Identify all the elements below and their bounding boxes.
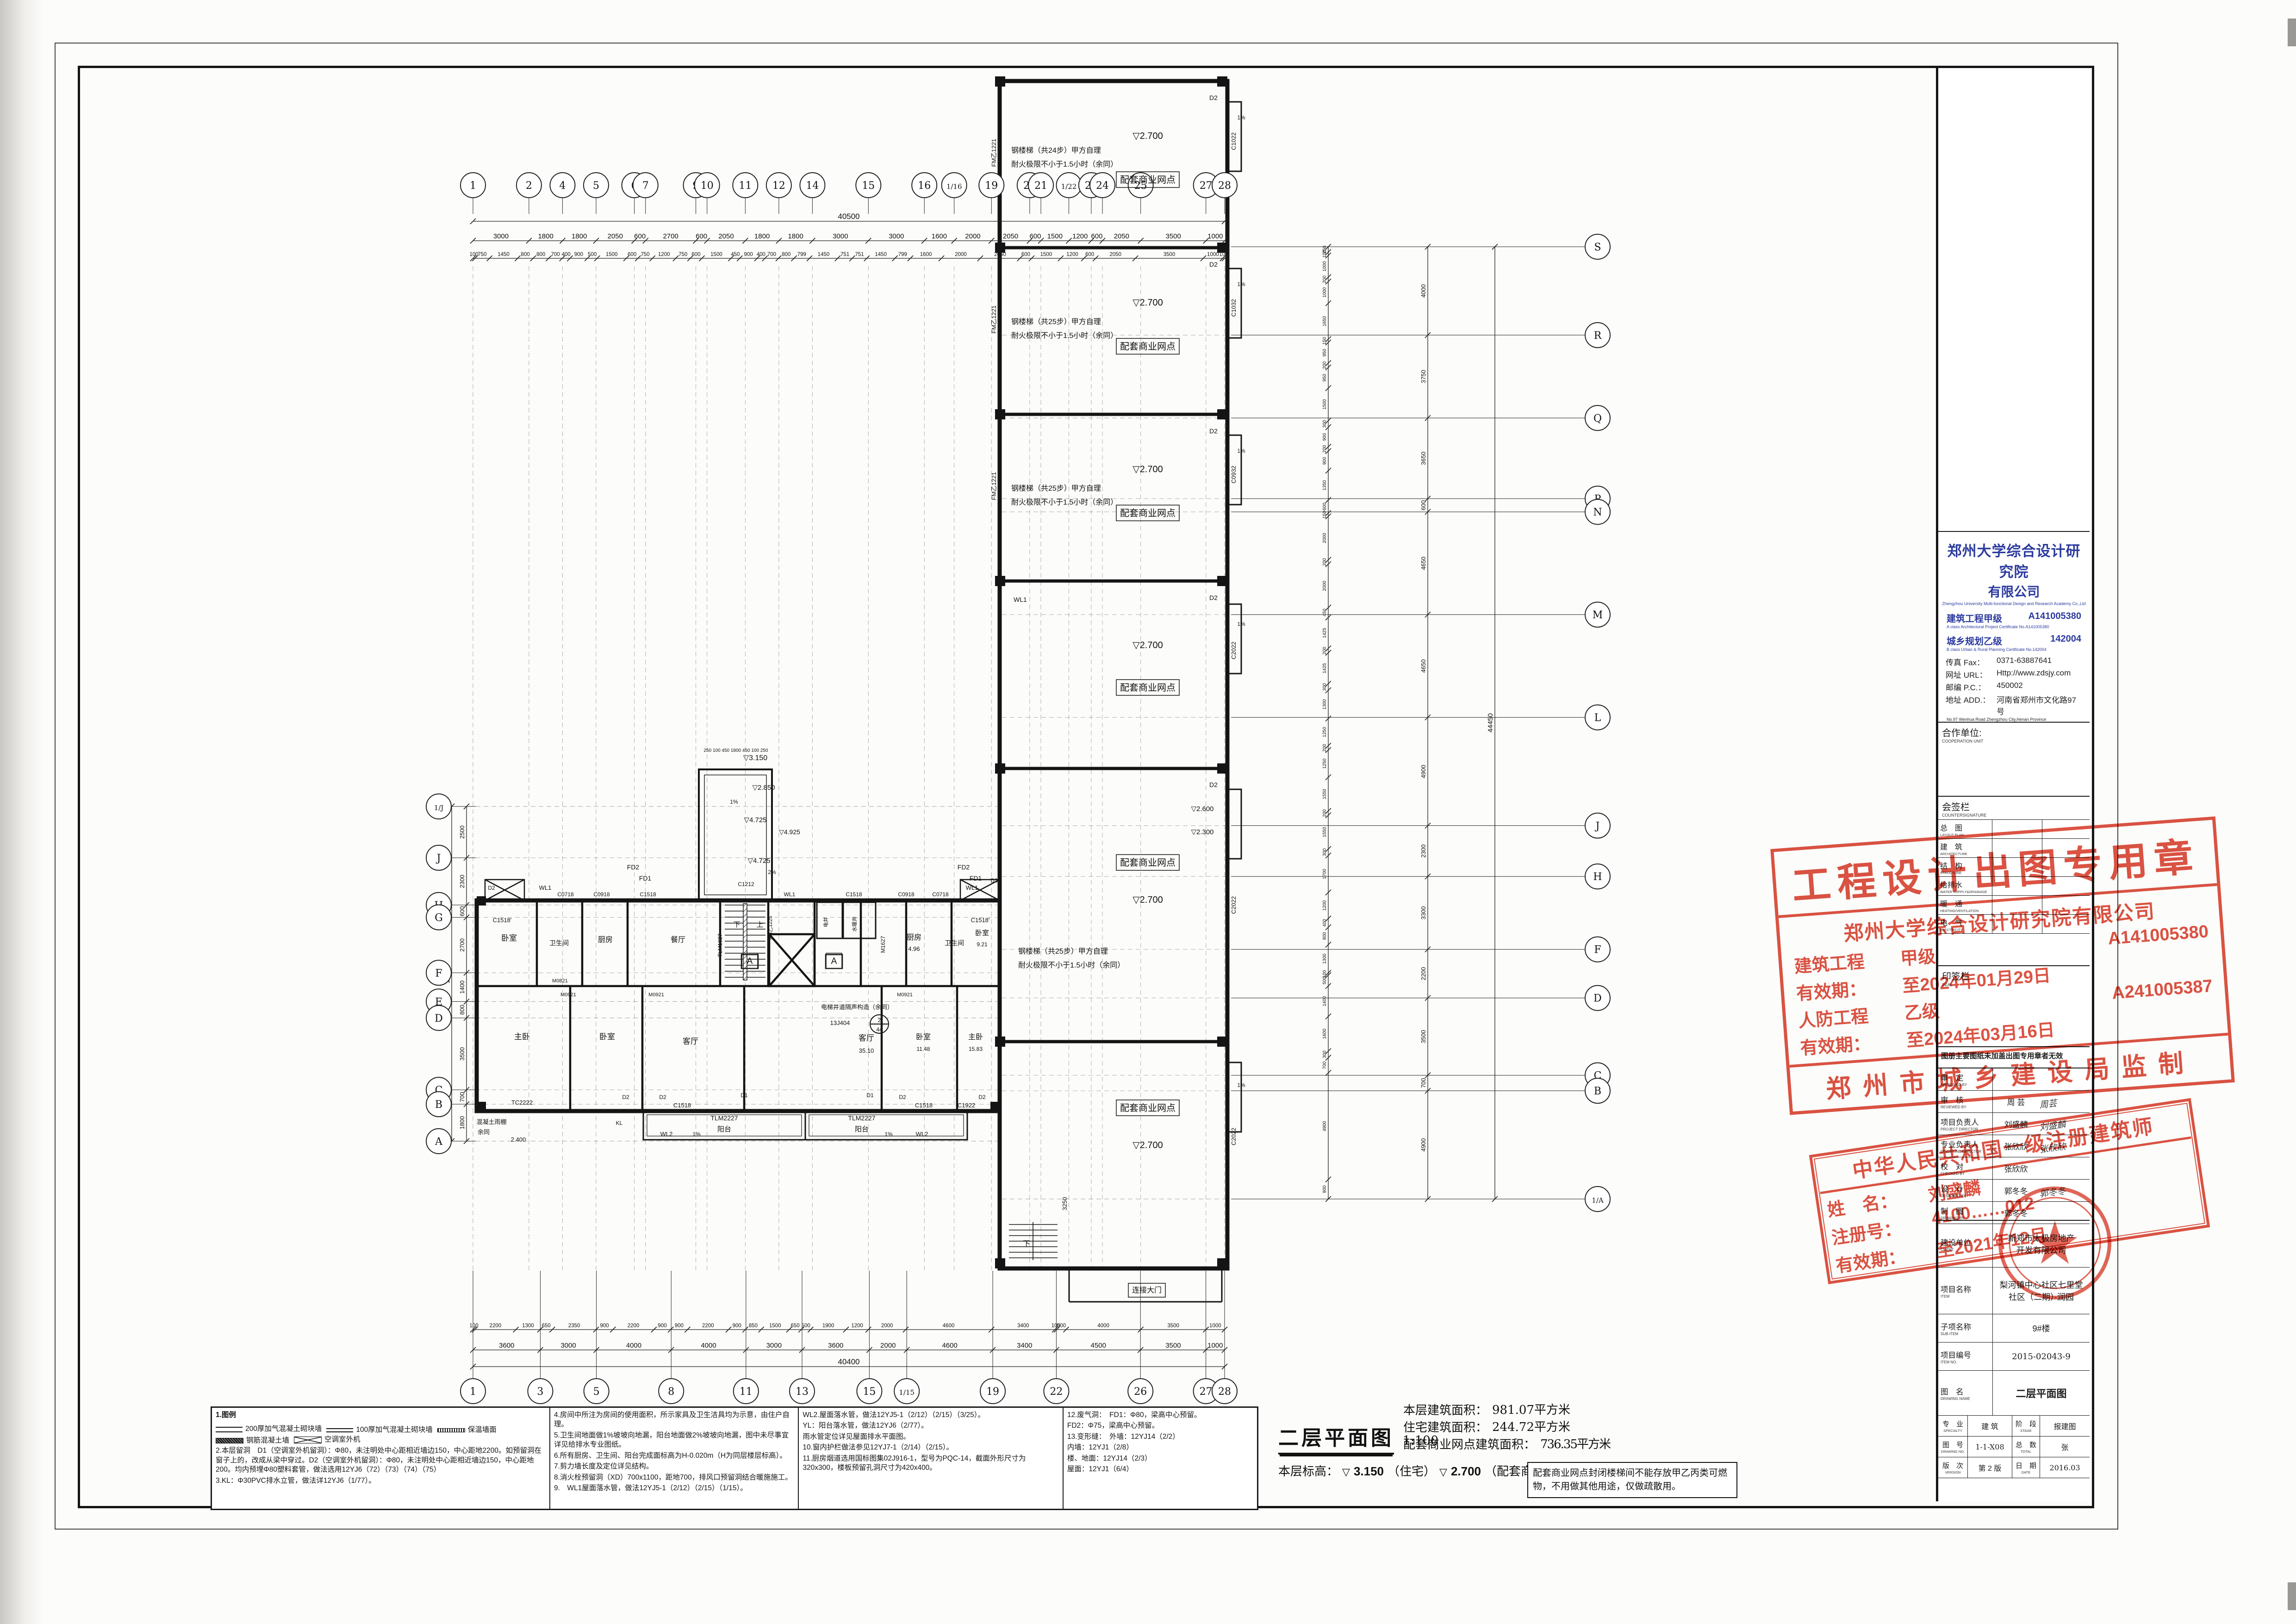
plan-label: 900 — [675, 1323, 684, 1329]
plan-label: ▽2.700 — [1132, 640, 1163, 650]
plan-label: 连接大门 — [1132, 1286, 1162, 1294]
dimension-strips: 4050030001800180020506002700600205018001… — [443, 212, 1498, 1369]
plan-label: 800 — [1322, 932, 1327, 940]
plan-label: 1800 — [572, 232, 587, 240]
plan-label: 1300 — [522, 1323, 534, 1329]
company-contacts: 传真 Fax：0371-63887641网址 URL：Http://www.zd… — [1942, 656, 2086, 717]
plan-label: 751 — [840, 252, 849, 257]
area-summary: 本层建筑面积：981.07平方米 住宅建筑面积：244.72平方米 配套商业网点… — [1403, 1402, 1610, 1453]
plan-label: F — [435, 968, 442, 979]
plan-label: 1 — [470, 1386, 476, 1398]
plan-label: C1922 — [958, 1102, 975, 1109]
plan-label: 1% — [884, 1131, 893, 1137]
plan-label: 450 — [1322, 608, 1327, 616]
note-item: 6.所有厨房、卫生间、阳台完成面标高为H-0.020m（H为同层楼层标高）。 — [554, 1451, 794, 1461]
plan-label: C1212 — [738, 881, 754, 887]
plan-label: 800 — [536, 252, 545, 257]
plan-label: 35.10 — [859, 1047, 874, 1054]
plan-label: 1% — [692, 1131, 701, 1137]
plan-label: WL2 — [916, 1131, 928, 1137]
contact-row: 邮编 P.C.：450002 — [1942, 681, 2086, 693]
plan-label: 1200 — [1072, 232, 1088, 240]
plan-label: 2.400 — [511, 1136, 526, 1143]
plan-label: 700 — [1420, 1078, 1427, 1088]
plan-label: 900 — [658, 1323, 666, 1329]
plan-label: D2 — [488, 885, 495, 891]
round-architect-seal — [1990, 1178, 2120, 1308]
plan-label: 10 — [701, 180, 714, 192]
plan-label: 200 — [1322, 558, 1327, 566]
plan-label: 1500 — [1047, 232, 1063, 240]
plan-label: 3400 — [1017, 1323, 1029, 1329]
plan-label: 200 — [1322, 445, 1327, 453]
plan-label: 1000 — [1207, 232, 1223, 240]
plan-label: 3500 — [1165, 232, 1181, 240]
plan-label: 5 — [593, 180, 599, 192]
plan-label: A — [747, 956, 753, 966]
plan-label: 27 — [1200, 1386, 1213, 1398]
plan-label: 950 — [1322, 349, 1327, 356]
plan-label: 1425 — [1322, 628, 1327, 638]
plan-label: 500 — [1057, 1323, 1066, 1329]
plan-label: D2 — [1209, 261, 1218, 268]
plan-label: D — [1593, 993, 1602, 1005]
plan-label: C0718 — [557, 891, 574, 898]
plan-label: 2700 — [459, 938, 466, 952]
plan-label: 8 — [668, 1386, 674, 1398]
plan-label: 1425 — [1322, 663, 1327, 674]
plan-label: 1500 — [1322, 399, 1327, 410]
plan-label: WL1 — [784, 891, 796, 898]
plan-label: 2000 — [1322, 533, 1327, 543]
note-item: YL：阳台落水管，做法12YJ6（2/77）。 — [803, 1421, 1059, 1430]
plan-label: 2 — [878, 1017, 881, 1024]
plan-label: 5 — [593, 1386, 600, 1398]
plan-label: 余同 — [478, 1129, 490, 1136]
plan-label: C0918 — [593, 891, 610, 898]
plan-label: B — [435, 1099, 442, 1111]
level-triangle-icon: ▽ — [1342, 1466, 1350, 1478]
plan-label: G — [435, 912, 443, 924]
plan-label: 2200 — [702, 1323, 714, 1329]
area-row: 本层建筑面积：981.07平方米 — [1403, 1402, 1610, 1419]
plan-label: 1000 — [1322, 261, 1327, 272]
plan-label: 1% — [1237, 621, 1245, 627]
drawing-name-block: 图 名DRAWING NAME 二层平面图 — [1938, 1371, 2090, 1416]
plan-label: 配套商业网点 — [1120, 682, 1176, 693]
plan-label: 44450 — [1487, 713, 1494, 733]
plan-label: 13J404 — [830, 1019, 850, 1026]
plan-label: WL1 — [966, 884, 978, 891]
plan-label: C2022 — [1230, 642, 1237, 659]
plan-label: 4650 — [1420, 659, 1427, 673]
plan-label: 1/22 — [1061, 182, 1077, 191]
plan-label: 1/15 — [899, 1388, 915, 1397]
plan-label: 500 — [802, 1323, 810, 1329]
plan-label: 12 — [772, 180, 785, 192]
plan-label: 1450 — [818, 252, 830, 257]
company-name: 郑州大学综合设计研究院 — [1942, 539, 2086, 581]
contact-row: 地址 ADD.：河南省郑州市文化路97号 — [1942, 693, 2086, 717]
plan-title-text: 二层平面图 — [1278, 1421, 1394, 1455]
plan-label: FD1 — [970, 874, 982, 882]
cooperation-unit-box: 合作单位: COOPERATION UNIT — [1938, 722, 2090, 796]
axis-bubbles: 12456791011121415161/161920211/222324252… — [426, 173, 1610, 1404]
plan-label: 600 — [1322, 502, 1327, 510]
contact-row: 网址 URL：Http://www.zdsjy.com — [1942, 668, 2086, 681]
plan-label: 1% — [1237, 281, 1245, 287]
commercial-stair — [1009, 1222, 1058, 1260]
plan-label: 400 — [1322, 919, 1327, 927]
plan-label: 4000 — [626, 1342, 641, 1349]
plan-label: 4000 — [1420, 284, 1427, 298]
plan-label: 电井 — [822, 917, 829, 927]
legend-item: 保温墙面 — [437, 1425, 497, 1435]
note-item: 13.变形缝： 外墙：12YJ14（2/2） — [1067, 1432, 1253, 1442]
plan-label: 14 — [806, 180, 819, 192]
plan-label: 2050 — [608, 232, 623, 240]
plan-label: 24 — [1096, 180, 1109, 192]
plan-label: 7 — [642, 180, 649, 192]
plan-label: 2000 — [881, 1323, 893, 1329]
plan-label: 4.96 — [908, 945, 920, 952]
title-block-divider — [1938, 531, 2090, 532]
plan-label: C1518 — [673, 1102, 691, 1109]
plan-label: A — [831, 956, 837, 966]
plan-label: 1900 — [822, 1323, 834, 1329]
plan-label: 1800 — [788, 232, 803, 240]
plan-label: 耐火极限不小于1.5小时（余同） — [1011, 331, 1118, 340]
plan-label: 耐火极限不小于1.5小时（余同） — [1011, 160, 1118, 169]
plan-label: 配套商业网点 — [1120, 508, 1176, 518]
plan-label: 850 — [749, 1323, 758, 1329]
plan-label: 1550 — [1322, 827, 1327, 837]
plan-label: C1022 — [1230, 132, 1237, 150]
legend-symbol-icon — [294, 1437, 322, 1443]
plan-label: 1500 — [710, 252, 722, 257]
plan-label: 1% — [1237, 1082, 1245, 1088]
plan-label: 钢楼梯（共24步）甲方自理 — [1011, 146, 1101, 155]
itemno-block: 项目编号ITEM NO. 2015-02043-9 — [1938, 1343, 2090, 1371]
plan-label: L — [1594, 712, 1601, 724]
plan-label: 700 — [1322, 1061, 1327, 1069]
plan-label: 1250 — [1322, 758, 1327, 769]
notes-col-2: 4.房间中所注为房间的使用面积，所示家具及卫生洁具均为示意，由住户自理。5.卫生… — [550, 1408, 799, 1509]
plan-label: 厨房 — [598, 936, 613, 944]
legend-symbol-icon — [326, 1428, 353, 1432]
plan-label: 500 — [588, 252, 597, 257]
plan-label: 15.83 — [969, 1046, 983, 1052]
commercial-stair-note-box: 配套商业网点封闭楼梯间不能存放甲乙丙类可燃物，不用做其他用途，仅做疏散用。 — [1527, 1462, 1737, 1498]
plan-label: 700 — [551, 252, 560, 257]
plan-label: C0918 — [898, 891, 915, 898]
plan-label: 2300 — [1420, 844, 1427, 858]
plan-label: ▽3.150 — [743, 754, 767, 762]
plan-label: ▽4.725 — [747, 857, 770, 865]
plan-label: D2 — [1209, 94, 1218, 101]
plan-label: 40400 — [838, 1357, 859, 1366]
meta-grid: 专 业SPECIALTY 建 筑 阶 段STAGE 报建图 图 号DRAWING… — [1938, 1416, 2090, 1478]
notes-col-4: 12.废气洞： FD1：Φ80，梁高中心预留。FD2：Φ75，梁高中心预留。13… — [1064, 1408, 1257, 1509]
note-item: 7.剪力墙长度及定位详见结构。 — [554, 1462, 794, 1471]
plan-label: 混凝土雨棚 — [476, 1118, 506, 1125]
plan-label: 阳台 — [855, 1125, 869, 1133]
notes-col-3: WL2.屋面落水管，做法12YJ5-1（2/12）（2/15）（3/25）。YL… — [799, 1408, 1064, 1509]
plan-label: D2 — [978, 1094, 986, 1100]
plan-label: ▽4.925 — [779, 828, 800, 836]
plan-label: 700 — [767, 252, 776, 257]
plan-label: 26 — [1134, 1386, 1147, 1398]
plan-label: 1/J — [434, 804, 444, 812]
plan-label: Q — [1593, 413, 1602, 425]
note-item: 8.消火栓预留洞（XD）700x1100，距地700，排风口预留洞结合暖施施工。 — [554, 1473, 794, 1482]
plan-label: FM乙1225 — [767, 916, 773, 939]
plan-label: 1450 — [875, 252, 887, 257]
plan-label: 2% — [768, 869, 776, 875]
legend-symbol-icon — [216, 1427, 243, 1432]
plan-label: 2200 — [1420, 967, 1427, 981]
plan-label: 2300 — [459, 874, 466, 888]
plan-label: 钢楼梯（共25步）甲方自理 — [1018, 947, 1108, 956]
plan-label: 钢楼梯（共25步）甲方自理 — [1011, 318, 1101, 326]
plan-label: 15 — [863, 1386, 876, 1398]
plan-label: 250 100 450 1800 450 100 250 — [703, 748, 768, 753]
plan-label: 799 — [898, 252, 907, 257]
note-item: 5.卫生间地面做1%坡坡向地漏，阳台地面做2%坡坡向地漏，图中未尽事宜详见给排水… — [554, 1431, 794, 1450]
plan-label: 150 — [1322, 337, 1327, 344]
plan-label: 950 — [1322, 374, 1327, 381]
plan-label: R — [1594, 330, 1602, 342]
plan-label: C1518' — [971, 917, 990, 924]
plan-label: 上 — [756, 921, 763, 929]
plan-label: 751 — [855, 252, 864, 257]
plan-label: 300 — [1322, 420, 1327, 428]
plan-label: 2050 — [1114, 232, 1129, 240]
plan-label: 1000 — [1207, 252, 1219, 257]
plan-label: C1032 — [1230, 299, 1237, 317]
subitem-block: 子项名称SUB-ITEM 9#楼 — [1938, 1314, 2090, 1343]
plan-label: 4600 — [942, 1342, 957, 1349]
plan-label: 150 — [1322, 250, 1327, 257]
plan-label: 4900 — [1420, 765, 1427, 778]
plan-label: 800 — [459, 1005, 466, 1015]
plan-label: 4600 — [943, 1323, 955, 1329]
plan-label: 1700 — [1322, 868, 1327, 879]
plan-label: C1518' — [493, 917, 512, 924]
plan-label: C0718 — [932, 891, 949, 898]
plan-label: 900 — [733, 1323, 741, 1329]
plan-label: C0932 — [1230, 466, 1237, 483]
plan-label: B — [1594, 1086, 1601, 1097]
plan-label: TLM2227 — [848, 1114, 875, 1122]
plan-label: 800 — [521, 252, 530, 257]
legend-symbol-icon — [437, 1428, 465, 1432]
plan-label: 3000 — [493, 232, 509, 240]
plan-label: 27 — [1200, 180, 1213, 192]
plan-label: 22 — [1050, 1386, 1063, 1398]
plan-label: 配套商业网点 — [1120, 175, 1176, 185]
plan-label: 厨房 — [907, 933, 921, 942]
plan-label: 200 — [1322, 809, 1327, 817]
plan-label: D — [435, 1013, 443, 1024]
plan-label: 钢楼梯（共25步）甲方自理 — [1011, 484, 1101, 493]
plan-label: ▽4.725 — [744, 816, 766, 824]
plan-label: 750 — [478, 252, 486, 257]
plan-label: 600 — [634, 232, 646, 240]
plan-label: C1518 — [915, 1102, 933, 1109]
plan-label: 1300 — [1322, 699, 1327, 710]
plan-label: 900 — [600, 1323, 609, 1329]
plan-label: 1000 — [1207, 1342, 1223, 1349]
plan-label: 卧室 — [975, 929, 989, 937]
plan-label: 500 — [1322, 976, 1327, 984]
plan-label: 400 — [757, 252, 765, 257]
plan-label: 600 — [1021, 252, 1030, 257]
plan-label: 900 — [574, 252, 583, 257]
design-institute-block: 郑州大学综合设计研究院 有限公司 Zhengzhou University Mu… — [1938, 535, 2090, 722]
plan-label: 1 — [470, 180, 476, 192]
plan-label: 600 — [459, 906, 466, 916]
plan-label: 2050 — [718, 232, 734, 240]
plan-label: 3500 — [1164, 252, 1176, 257]
plan-label: WL1 — [1014, 596, 1027, 603]
drawing-sheet: 4050030001800180020506002700600205018001… — [0, 0, 2296, 1624]
plan-label: TLM1627 — [717, 933, 723, 957]
legend-item: 空调室外机 — [294, 1435, 361, 1444]
plan-label: 1600 — [932, 232, 947, 240]
plan-label: 2000 — [880, 1342, 896, 1349]
level-triangle-icon: ▽ — [1439, 1466, 1447, 1478]
plan-label: 3650 — [1420, 452, 1427, 465]
plan-label: 1500 — [606, 252, 618, 257]
plan-label: 2000 — [955, 252, 967, 257]
plan-label: 600 — [1029, 232, 1041, 240]
contact-row: 传真 Fax：0371-63887641 — [1942, 656, 2086, 668]
note-item: 11.厨房烟道选用国标图集02J916-1，型号为PQC-14，截面外形尺寸为3… — [803, 1454, 1059, 1473]
plan-label: 电梯井道隔声构造（余同） — [821, 1004, 893, 1011]
plan-label: D2 — [990, 877, 998, 884]
plan-label: 28 — [1218, 180, 1231, 192]
plan-label: 3600 — [499, 1342, 514, 1349]
plan-label: 1250 — [1322, 727, 1327, 737]
note-item: 4.房间中所注为房间的使用面积，所示家具及卫生洁具均为示意，由住户自理。 — [554, 1411, 794, 1430]
area-row: 住宅建筑面积：244.72平方米 — [1403, 1419, 1610, 1436]
note-item: FD2：Φ75，梁高中心预留。 — [1067, 1421, 1253, 1430]
plan-label: M0821 — [552, 978, 568, 984]
plan-label: 餐厅 — [671, 936, 685, 944]
plan-label: 3750 — [1420, 370, 1427, 383]
plan-label: 900 — [1322, 1185, 1327, 1193]
plan-label: 3500 — [459, 1047, 466, 1061]
plan-label: WL2 — [660, 1131, 673, 1137]
plan-label: 1% — [730, 799, 738, 805]
note-item: 2.本层留洞 D1（空调室外机留洞）：Φ80，未注明处中心距相近墙边150，中心… — [216, 1446, 546, 1474]
plan-label: 1000 — [1209, 1323, 1221, 1329]
plan-label: C2022 — [1230, 1128, 1237, 1145]
plan-label: C2022 — [1230, 896, 1237, 914]
plan-label: 卧室 — [599, 1032, 615, 1041]
plan-label: 650 — [791, 1323, 800, 1329]
plan-label: ▽2.700 — [1132, 1140, 1163, 1150]
plan-label: FM乙1221 — [990, 472, 997, 500]
note-item: 屋面：12YJ1（6/4） — [1067, 1465, 1253, 1474]
plan-label: 4900 — [1322, 1121, 1327, 1131]
plan-label: 300 — [1322, 683, 1327, 691]
plan-label: FD2 — [627, 863, 640, 871]
plan-label: 1/16 — [946, 182, 962, 191]
plan-label: A — [435, 1136, 443, 1148]
note-item: 3.KL：Φ30PVC排水立管，做法详12YJ6（1/77）。 — [216, 1476, 546, 1486]
plan-label: 900 — [1322, 457, 1327, 465]
plan-label: C1518 — [846, 891, 862, 898]
plan-label: 900 — [1322, 433, 1327, 441]
plan-label: 700 — [459, 1092, 466, 1102]
note-item: 10.窗内护栏做法参见12YJ7-1（2/14）（2/15）。 — [803, 1443, 1059, 1452]
legend-item: 100厚加气混凝土砌块墙 — [326, 1425, 432, 1435]
plan-label: 600 — [1085, 252, 1094, 257]
plan-label: ▽2.600 — [1191, 805, 1213, 813]
plan-label: 1200 — [658, 252, 670, 257]
plan-label: 200 — [1322, 744, 1327, 752]
notes-col-1: 1.图例 200厚加气混凝土砌块墙100厚加气混凝土砌块墙保温墙面钢筋混凝土墙空… — [212, 1408, 550, 1509]
plan-label: 2200 — [628, 1323, 640, 1329]
plan-label: 3000 — [833, 232, 848, 240]
plan-label: 主卧 — [968, 1033, 983, 1041]
plan-label: 客厅 — [859, 1034, 874, 1043]
plan-label: 2500 — [459, 825, 466, 839]
plan-label: 1000 — [1322, 287, 1327, 298]
plan-label: 11 — [739, 180, 752, 192]
plan-label: 1% — [1237, 114, 1245, 121]
plan-label: 200 — [1322, 361, 1327, 369]
plan-label: 1/A — [1592, 1196, 1604, 1205]
plan-label: 300 — [1322, 848, 1327, 856]
plan-label: 1550 — [1322, 789, 1327, 800]
plan-label: 4900 — [1420, 1138, 1427, 1152]
plan-label: 3400 — [1017, 1342, 1032, 1349]
plan-label: 主卧 — [514, 1032, 530, 1041]
plan-label: 1400 — [459, 981, 466, 994]
plan-label: D1 — [740, 1092, 748, 1099]
plan-label: 配套商业网点 — [1120, 857, 1176, 868]
plan-label: 4650 — [1420, 556, 1427, 570]
plan-label: 1600 — [1322, 1029, 1327, 1039]
plan-text-labels: ▽2.700配套商业网点钢楼梯（共24步）甲方自理耐火极限不小于1.5小时（余同… — [476, 94, 1245, 1297]
plan-label: 耐火极限不小于1.5小时（余同） — [1011, 498, 1118, 506]
plan-label: ▽2.700 — [1132, 298, 1163, 308]
plan-label: 600 — [1420, 500, 1427, 511]
plan-label: M0921 — [897, 992, 913, 998]
plan-label: TLM2227 — [710, 1114, 738, 1122]
plan-label: 1200 — [1322, 900, 1327, 911]
plan-label: WL1 — [539, 884, 552, 891]
plan-label: S — [1594, 242, 1601, 253]
note-item: 楼、地面：12YJ14（2/3） — [1067, 1454, 1253, 1463]
plan-label: D2 — [1209, 427, 1218, 435]
plan-label: 750 — [678, 252, 687, 257]
plan-label: 水暖井 — [851, 917, 858, 932]
plan-label: 3500 — [1167, 1323, 1179, 1329]
plan-label: 450 — [731, 252, 740, 257]
plan-label: 3300 — [1420, 906, 1427, 919]
plan-label: 200 — [1322, 647, 1327, 655]
plan-label: 600 — [628, 252, 636, 257]
plan-label: D2 — [622, 1094, 629, 1100]
plan-label: 15 — [862, 180, 875, 192]
plan-label: FD1 — [639, 874, 652, 882]
plan-label: 耐火极限不小于1.5小时（余同） — [1018, 961, 1125, 969]
plan-label: 3600 — [828, 1342, 843, 1349]
